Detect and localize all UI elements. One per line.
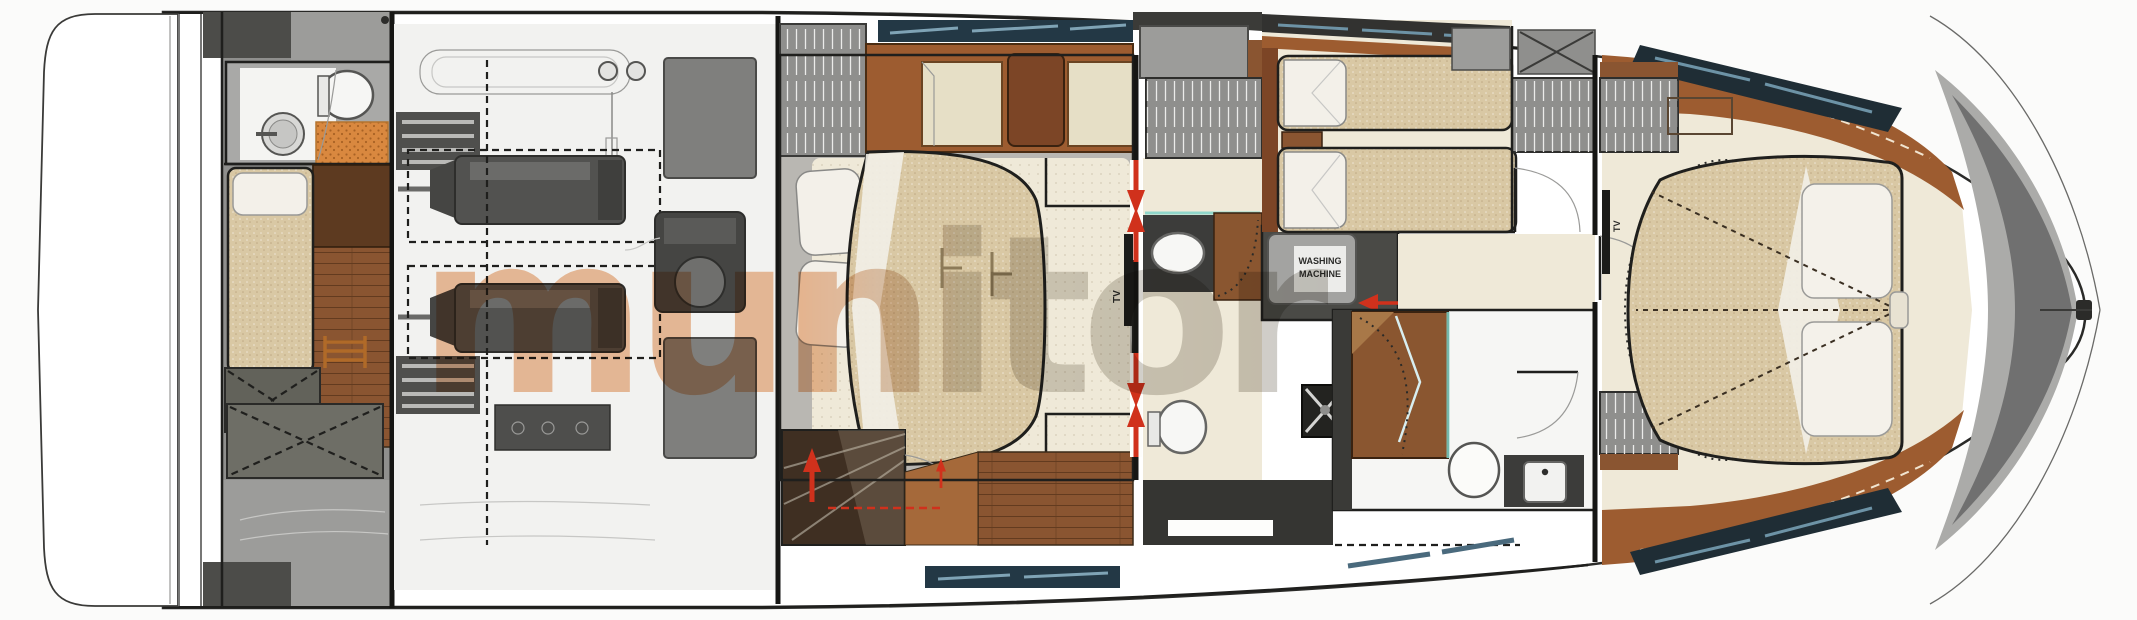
crew-bathroom: [226, 62, 392, 164]
swim-platform: [38, 14, 203, 606]
tank-starboard: [664, 58, 756, 178]
deck-box: [1140, 26, 1248, 78]
nightstand: [1282, 132, 1322, 148]
crew-berth: [228, 168, 313, 372]
deck-box: [1452, 28, 1510, 70]
vanity: [1504, 455, 1584, 507]
master-wood-floor: [978, 452, 1133, 545]
pillow: [1802, 322, 1892, 436]
staircase: [782, 430, 905, 545]
crew-wardrobe: [313, 165, 392, 247]
pillow: [233, 173, 307, 215]
transom-passage: [178, 14, 203, 606]
pillow: [1802, 184, 1892, 298]
yacht-floorplan: TV WASHING MACHINE: [0, 0, 2137, 620]
vip-tv-label: TV: [1612, 220, 1622, 232]
corridor: [1398, 234, 1595, 310]
toilet: [1449, 443, 1499, 497]
vip-cabin: TV: [1595, 45, 1972, 575]
seat-alcove: [1068, 62, 1133, 146]
deck-box-braced: [1518, 30, 1595, 74]
vip-bed: [1625, 156, 1908, 463]
capstan-icon: [599, 62, 617, 80]
watermark: munitor: [418, 188, 1328, 444]
capstan-icon: [627, 62, 645, 80]
tv-screen: [1602, 190, 1610, 274]
pillow: [1284, 60, 1346, 126]
cleat-icon: [381, 16, 389, 24]
faucet-icon: [1542, 469, 1548, 475]
crew-cabin: [203, 12, 392, 608]
aft-deck-step: [203, 12, 291, 58]
washbasin: [1524, 462, 1566, 502]
shower: [1352, 312, 1448, 458]
cabinet: [1008, 54, 1064, 146]
floorplan-svg: TV WASHING MACHINE: [0, 0, 2137, 620]
